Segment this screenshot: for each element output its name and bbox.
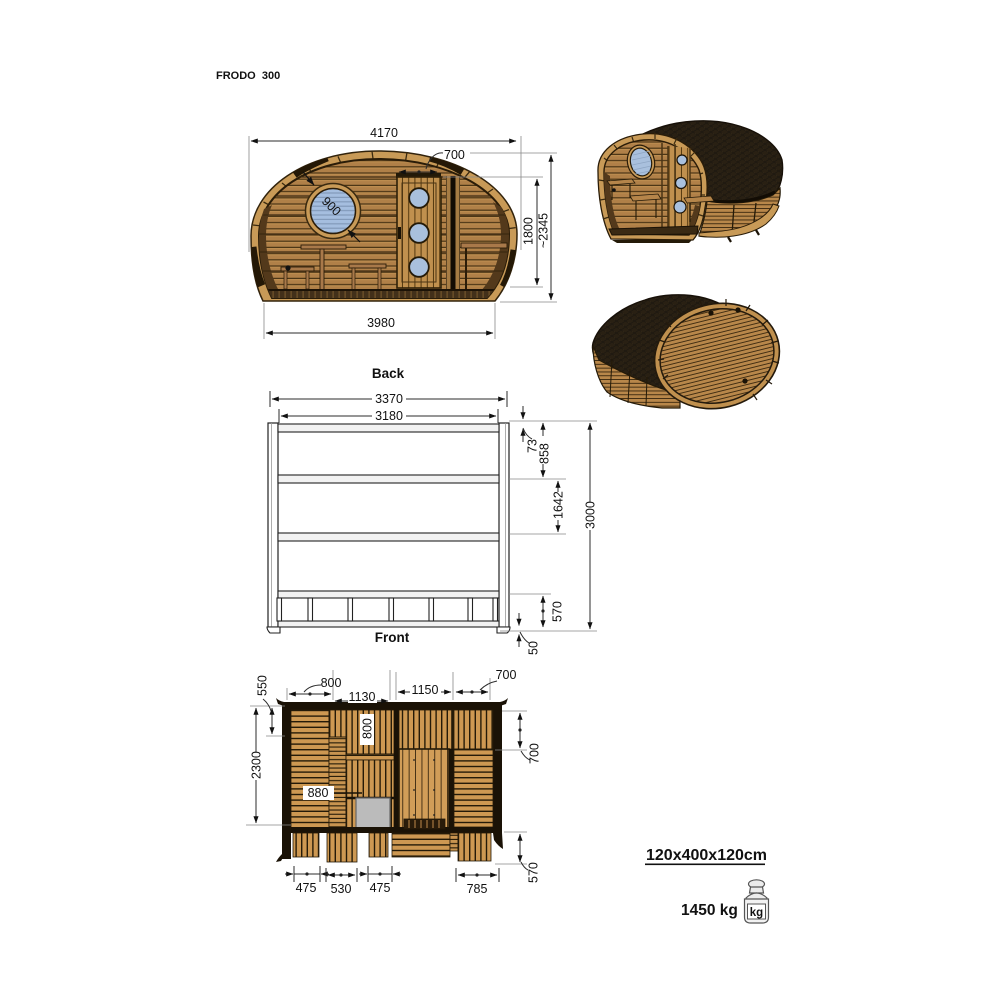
svg-text:1642: 1642 — [552, 491, 566, 519]
svg-text:858: 858 — [538, 443, 552, 464]
svg-text:1450 kg: 1450 kg — [681, 902, 738, 919]
svg-text:50: 50 — [527, 641, 541, 655]
svg-text:785: 785 — [467, 882, 488, 896]
svg-text:120x400x120cm: 120x400x120cm — [646, 847, 767, 864]
svg-text:880: 880 — [308, 786, 329, 800]
svg-text:700: 700 — [444, 148, 465, 162]
svg-text:570: 570 — [551, 601, 565, 622]
svg-text:700: 700 — [496, 668, 517, 682]
svg-text:~2345: ~2345 — [537, 213, 551, 248]
svg-text:3370: 3370 — [375, 392, 403, 406]
svg-text:kg: kg — [750, 907, 763, 919]
svg-text:530: 530 — [331, 882, 352, 896]
svg-text:570: 570 — [527, 862, 541, 883]
svg-text:2300: 2300 — [250, 751, 264, 779]
svg-text:1150: 1150 — [412, 683, 439, 697]
svg-text:475: 475 — [296, 881, 317, 895]
svg-text:4170: 4170 — [370, 126, 398, 140]
svg-text:Back: Back — [372, 366, 405, 381]
svg-text:3980: 3980 — [367, 316, 395, 330]
svg-text:1130: 1130 — [349, 690, 376, 704]
svg-text:800: 800 — [361, 718, 375, 739]
svg-text:475: 475 — [370, 881, 391, 895]
svg-text:1800: 1800 — [522, 217, 536, 245]
svg-text:550: 550 — [256, 675, 270, 696]
svg-text:800: 800 — [321, 676, 342, 690]
svg-text:3180: 3180 — [375, 409, 403, 423]
svg-text:FRODO 300: FRODO 300 — [216, 70, 280, 82]
svg-text:700: 700 — [528, 743, 542, 764]
svg-text:Front: Front — [375, 630, 410, 645]
svg-text:3000: 3000 — [584, 501, 598, 529]
